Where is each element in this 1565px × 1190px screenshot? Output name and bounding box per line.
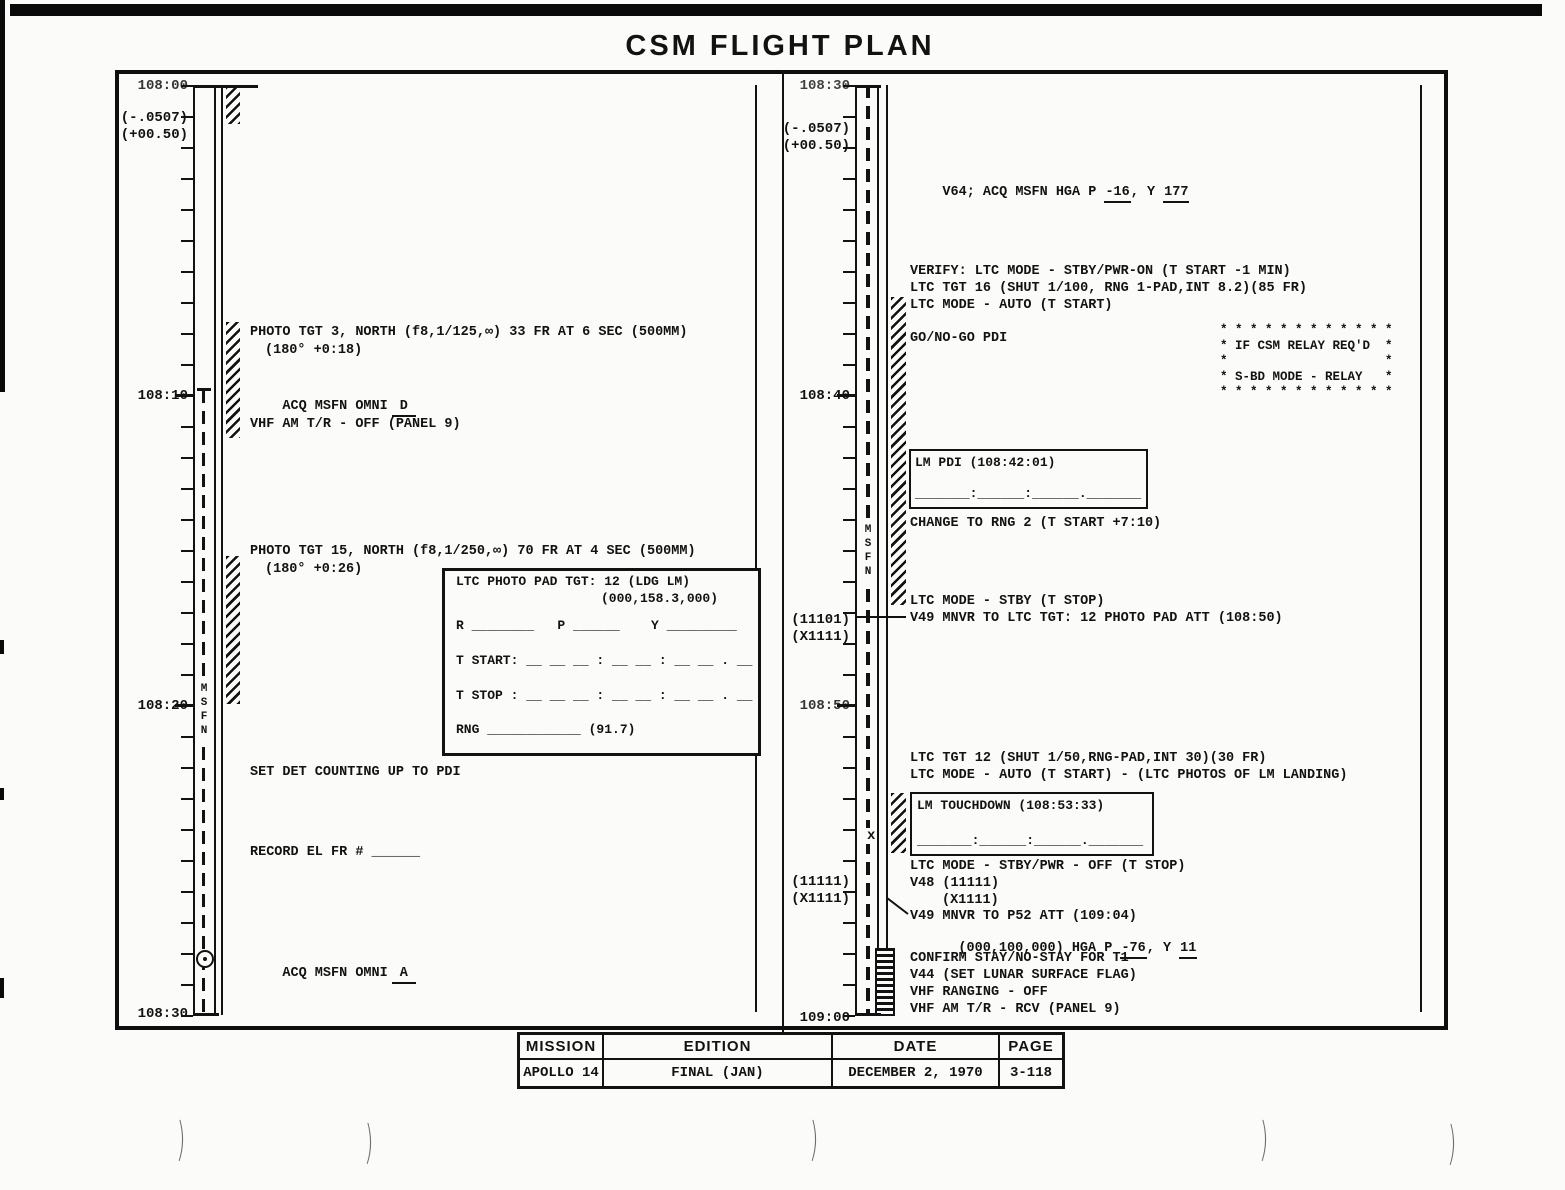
event-set-det: SET DET COUNTING UP TO PDI bbox=[250, 765, 461, 780]
left-activity-line-1 bbox=[214, 85, 216, 1015]
event-vhf-ranging-off: VHF RANGING - OFF bbox=[910, 985, 1048, 1000]
v64-prefix: V64; ACQ MSFN HGA P bbox=[942, 185, 1104, 200]
photo-pad-rpy-line: R ________ P ______ Y _________ bbox=[456, 618, 737, 633]
scan-curve-mark-5: ) bbox=[1447, 1116, 1457, 1171]
footer-table: MISSION EDITION DATE PAGE APOLLO 14 FINA… bbox=[517, 1032, 1065, 1089]
x-event-marker: x bbox=[865, 828, 877, 844]
photo-pad-tstart-line: T START: __ __ __ : __ __ : __ __ . __ bbox=[456, 653, 752, 668]
event-verify-ltc-line3: LTC MODE - AUTO (T START) bbox=[910, 298, 1113, 313]
event-ltc-tgt12-line2: LTC MODE - AUTO (T START) - (LTC PHOTOS … bbox=[910, 768, 1347, 783]
scan-artifact-left-dash-2 bbox=[0, 788, 4, 800]
lm-pdi-title: LM PDI (108:42:01) bbox=[915, 455, 1055, 470]
footer-header-mission: MISSION bbox=[520, 1035, 604, 1060]
right-att-label-1b: (X1111) bbox=[770, 629, 850, 645]
left-hatch-segment-3 bbox=[226, 556, 240, 704]
scan-artifact-left-dash-1 bbox=[0, 640, 4, 654]
left-time-108-20: 108:20 bbox=[108, 698, 188, 714]
event-verify-ltc-line1: VERIFY: LTC MODE - STBY/PWR-ON (T START … bbox=[910, 264, 1291, 279]
left-time-108-30: 108:30 bbox=[108, 1006, 188, 1022]
relay-note-line3: * * bbox=[1220, 354, 1393, 368]
left-hatch-segment-2 bbox=[226, 322, 240, 438]
left-timeline-ruler bbox=[193, 85, 195, 1015]
right-timeline-ruler bbox=[855, 85, 857, 1015]
photo-pad-tstop-line: T STOP : __ __ __ : __ __ : __ __ . __ bbox=[456, 688, 752, 703]
right-column-right-rule bbox=[1420, 85, 1422, 1012]
event-v44-lunar-flag: V44 (SET LUNAR SURFACE FLAG) bbox=[910, 968, 1137, 983]
right-activity-line-1 bbox=[877, 85, 879, 948]
right-att-label-2a: (11111) bbox=[770, 874, 850, 890]
left-rate-label-1: (-.0507) bbox=[108, 110, 188, 126]
left-rate-label-2: (+00.50) bbox=[108, 127, 188, 143]
footer-header-date: DATE bbox=[833, 1035, 1000, 1060]
p52-yaw-value: 11 bbox=[1179, 941, 1197, 959]
right-time-108-30: 108:30 bbox=[770, 78, 850, 94]
event-verify-ltc-line2: LTC TGT 16 (SHUT 1/100, RNG 1-PAD,INT 8.… bbox=[910, 281, 1307, 296]
event-v48-line2: (X1111) bbox=[942, 893, 999, 908]
right-hatch-segment-2 bbox=[891, 793, 906, 853]
acq-a-label: ACQ MSFN OMNI bbox=[282, 966, 387, 981]
scan-curve-mark-1: ) bbox=[176, 1112, 186, 1167]
relay-note-line1: * * * * * * * * * * * * bbox=[1220, 323, 1393, 337]
event-photo-tgt3-line1: PHOTO TGT 3, NORTH (f8,1/125,∞) 33 FR AT… bbox=[250, 325, 687, 340]
footer-header-page: PAGE bbox=[1000, 1035, 1062, 1060]
right-time-108-40: 108:40 bbox=[770, 388, 850, 404]
flight-plan-page: CSM FLIGHT PLAN 108:00 (-.0507) (+00.50)… bbox=[0, 0, 1565, 1190]
right-rate-label-1: (-.0507) bbox=[770, 121, 850, 137]
event-photo-tgt3-line2: (180° +0:18) bbox=[265, 343, 362, 358]
relay-note-line2: * IF CSM RELAY REQ'D * bbox=[1220, 339, 1393, 353]
event-vhf-am-rcv: VHF AM T/R - RCV (PANEL 9) bbox=[910, 1002, 1121, 1017]
scan-curve-mark-2: ) bbox=[364, 1115, 374, 1170]
event-photo-tgt15-line1: PHOTO TGT 15, NORTH (f8,1/250,∞) 70 FR A… bbox=[250, 544, 696, 559]
scan-artifact-left-strip bbox=[0, 0, 5, 392]
v64-yaw-value: 177 bbox=[1163, 185, 1189, 203]
scan-curve-mark-3: ) bbox=[809, 1112, 819, 1167]
right-activity-line-2 bbox=[886, 85, 888, 948]
event-change-rng2: CHANGE TO RNG 2 (T START +7:10) bbox=[910, 516, 1161, 531]
p52-mid: , Y bbox=[1147, 941, 1179, 956]
photo-pad-subtitle: (000,158.3,000) bbox=[601, 591, 718, 606]
event-v49-ltc-tgt12: V49 MNVR TO LTC TGT: 12 PHOTO PAD ATT (1… bbox=[910, 611, 1283, 626]
footer-value-row: APOLLO 14 FINAL (JAN) DECEMBER 2, 1970 3… bbox=[520, 1060, 1062, 1086]
footer-header-edition: EDITION bbox=[604, 1035, 833, 1060]
event-vhf-off: VHF AM T/R - OFF (PANEL 9) bbox=[250, 417, 461, 432]
right-hatch-segment-1 bbox=[891, 297, 906, 605]
event-v64-acq-hga: V64; ACQ MSFN HGA P -16, Y 177 bbox=[910, 170, 1189, 215]
scan-artifact-top-bar bbox=[10, 4, 1542, 16]
left-time-108-10: 108:10 bbox=[108, 388, 188, 404]
left-activity-line-2 bbox=[221, 85, 223, 1015]
photo-pad-title: LTC PHOTO PAD TGT: 12 (LDG LM) bbox=[456, 574, 690, 589]
lm-touchdown-title: LM TOUCHDOWN (108:53:33) bbox=[917, 798, 1104, 813]
left-time-108-00: 108:00 bbox=[108, 78, 188, 94]
event-photo-tgt15-line2: (180° +0:26) bbox=[265, 562, 362, 577]
left-msfn-line-start-cap bbox=[197, 388, 211, 391]
right-rate-label-2: (+00.50) bbox=[770, 138, 850, 154]
event-go-no-go-pdi: GO/NO-GO PDI bbox=[910, 331, 1007, 346]
footer-value-page: 3-118 bbox=[1000, 1060, 1062, 1086]
left-column-right-rule bbox=[755, 85, 757, 1012]
scan-artifact-left-dash-3 bbox=[0, 978, 4, 998]
left-timeline-minor-ticks bbox=[181, 85, 193, 1017]
lm-touchdown-blank-line: _______:______:______._______ bbox=[917, 833, 1143, 848]
v64-pitch-value: -16 bbox=[1104, 185, 1130, 203]
right-att-label-1a: (11101) bbox=[770, 612, 850, 628]
right-time-108-50: 108:50 bbox=[770, 698, 850, 714]
relay-note-line5: * * * * * * * * * * * * bbox=[1220, 385, 1393, 399]
event-v49-p52-line1: V49 MNVR TO P52 ATT (109:04) bbox=[910, 909, 1137, 924]
left-msfn-label: MSFN bbox=[197, 680, 210, 742]
acq-d-label: ACQ MSFN OMNI bbox=[282, 399, 387, 414]
event-confirm-stay: CONFIRM STAY/NO-STAY FOR T1 bbox=[910, 951, 1129, 966]
event-v48-line1: V48 (11111) bbox=[910, 876, 999, 891]
lm-pdi-blank-line: _______:______:______._______ bbox=[915, 486, 1141, 501]
v64-mid: , Y bbox=[1131, 185, 1163, 200]
photo-pad-rng-line: RNG ____________ (91.7) bbox=[456, 722, 635, 737]
event-ltc-stby: LTC MODE - STBY (T STOP) bbox=[910, 594, 1104, 609]
scan-curve-mark-4: ) bbox=[1259, 1112, 1269, 1167]
footer-value-mission: APOLLO 14 bbox=[520, 1060, 604, 1086]
right-striped-bar bbox=[875, 948, 895, 1016]
left-hatch-segment-1 bbox=[226, 86, 240, 124]
page-title: CSM FLIGHT PLAN bbox=[560, 30, 1000, 63]
right-msfn-label: MSFN bbox=[861, 521, 874, 583]
relay-note-line4: * S-BD MODE - RELAY * bbox=[1220, 370, 1393, 384]
acq-d-value: D bbox=[392, 399, 416, 417]
event-record-el-fr: RECORD EL FR # ______ bbox=[250, 845, 420, 860]
footer-header-row: MISSION EDITION DATE PAGE bbox=[520, 1035, 1062, 1060]
acq-a-value: A bbox=[392, 966, 416, 984]
right-att-label-2b: (X1111) bbox=[770, 891, 850, 907]
circled-dot-marker bbox=[196, 950, 214, 968]
footer-value-date: DECEMBER 2, 1970 bbox=[833, 1060, 1000, 1086]
event-ltc-tgt12-line1: LTC TGT 12 (SHUT 1/50,RNG-PAD,INT 30)(30… bbox=[910, 751, 1266, 766]
right-time-109-00: 109:00 bbox=[770, 1010, 850, 1026]
event-ltc-pwr-off: LTC MODE - STBY/PWR - OFF (T STOP) bbox=[910, 859, 1185, 874]
footer-value-edition: FINAL (JAN) bbox=[604, 1060, 833, 1086]
event-acq-msfn-omni-a: ACQ MSFN OMNIA bbox=[250, 951, 416, 996]
